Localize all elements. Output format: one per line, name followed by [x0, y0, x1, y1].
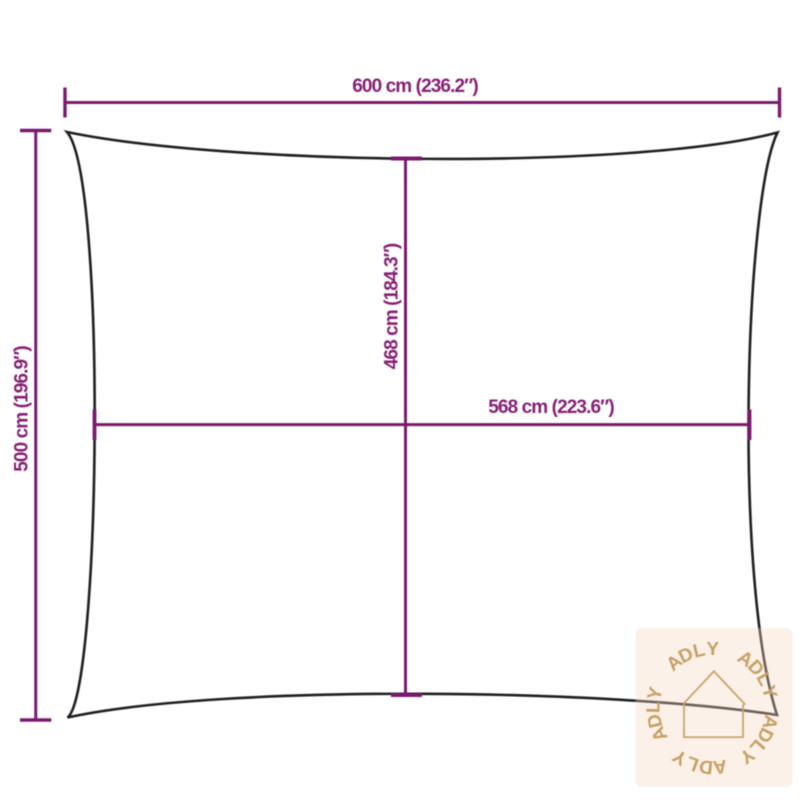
svg-text:468 cm (184.3″): 468 cm (184.3″) — [382, 243, 403, 369]
svg-text:568 cm (223.6″): 568 cm (223.6″) — [488, 397, 614, 418]
svg-text:600 cm (236.2″): 600 cm (236.2″) — [352, 76, 478, 97]
svg-text:500 cm (196.9″): 500 cm (196.9″) — [12, 346, 33, 472]
svg-text:Y: Y — [706, 639, 719, 660]
svg-text:L: L — [643, 701, 664, 713]
